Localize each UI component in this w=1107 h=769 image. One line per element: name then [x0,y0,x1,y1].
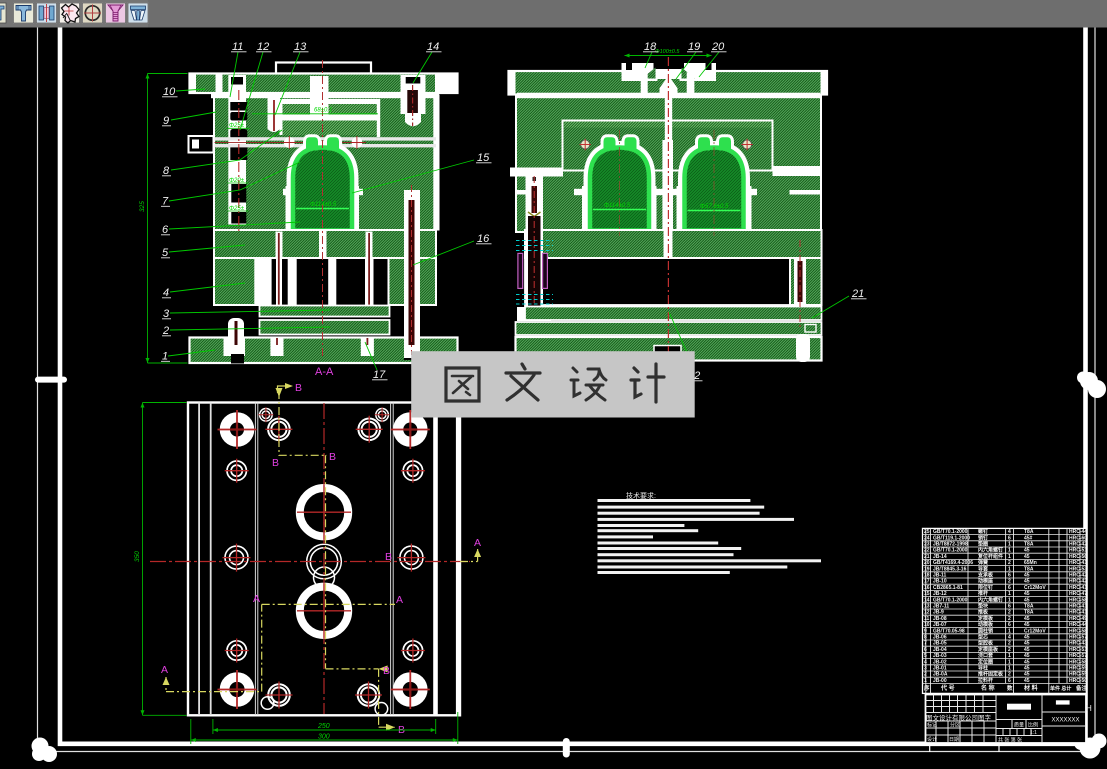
svg-text:19: 19 [924,566,930,572]
svg-text:HRC-58: HRC-58 [1069,659,1087,665]
svg-text:8: 8 [924,635,927,641]
svg-text:6: 6 [1008,535,1011,541]
svg-text:1: 1 [1008,659,1011,665]
svg-text:定模座板: 定模座板 [977,646,999,653]
svg-text:材 料: 材 料 [1023,684,1038,692]
svg-text:支承板: 支承板 [977,572,994,579]
svg-text:GB/T70.1-2000: GB/T70.1-2000 [933,548,968,554]
svg-text:11: 11 [924,616,930,622]
svg-text:21: 21 [924,554,930,560]
svg-text:4: 4 [1008,529,1011,535]
svg-text:HRC-58: HRC-58 [1069,628,1087,634]
svg-text:7: 7 [924,641,927,647]
svg-text:导柱: 导柱 [978,665,988,672]
svg-text:JB7-11: JB7-11 [933,604,949,610]
svg-text:型芯: 型芯 [978,634,988,641]
svg-text:JB-03: JB-03 [933,653,947,659]
svg-text:350: 350 [134,551,141,562]
svg-text:T8A: T8A [1024,542,1034,548]
svg-text:复位杆组件: 复位杆组件 [977,553,1003,560]
svg-text:45: 45 [1024,641,1030,647]
svg-text:销钉: 销钉 [978,534,988,541]
svg-text:A: A [474,537,481,549]
svg-text:45: 45 [1024,635,1030,641]
svg-text:JB-9: JB-9 [933,610,944,616]
svg-text:2: 2 [1008,672,1011,678]
svg-text:HRC-51: HRC-51 [1069,548,1087,554]
svg-text:B: B [329,451,336,463]
svg-text:45: 45 [1024,666,1030,672]
svg-text:325: 325 [139,201,146,212]
svg-text:垫块: 垫块 [978,603,989,610]
svg-text:推板: 推板 [978,609,989,616]
svg-text:A-A: A-A [315,366,334,378]
svg-text:5: 5 [162,247,169,259]
svg-text:质量: 质量 [1014,722,1024,729]
svg-text:标记: 标记 [927,722,937,729]
svg-text:HRC-44: HRC-44 [1069,622,1087,628]
svg-text:12: 12 [924,610,930,616]
svg-text:HRC-53: HRC-53 [1069,566,1087,572]
svg-text:1: 1 [1008,653,1011,659]
svg-text:HRC-50: HRC-50 [1069,678,1087,684]
svg-text:2: 2 [1008,647,1011,653]
svg-text:JB-10: JB-10 [933,579,947,585]
svg-text:Φ57.6±0.5: Φ57.6±0.5 [700,204,729,210]
svg-text:B: B [295,382,302,394]
svg-text:HRC-41: HRC-41 [1069,604,1087,610]
svg-text:20: 20 [711,41,725,53]
svg-text:45: 45 [1024,573,1030,579]
svg-text:250: 250 [317,723,330,730]
svg-text:6: 6 [162,224,169,236]
svg-text:HRC-42: HRC-42 [1069,579,1087,585]
svg-text:20: 20 [924,560,930,566]
svg-text:16: 16 [477,233,490,245]
svg-text:45#: 45# [1024,535,1033,541]
svg-text:JB-00: JB-00 [933,678,947,684]
svg-text:HRC-49: HRC-49 [1069,616,1087,622]
svg-text:18: 18 [924,573,930,579]
svg-text:CB2865.1-81: CB2865.1-81 [933,585,963,591]
svg-text:1:1: 1:1 [1030,730,1037,736]
svg-text:10: 10 [924,622,930,628]
svg-text:21: 21 [851,288,864,300]
svg-text:15: 15 [924,591,930,597]
svg-text:HRC-41: HRC-41 [1069,610,1087,616]
svg-text:内六角螺钉: 内六角螺钉 [978,596,1003,603]
svg-text:拉料杆: 拉料杆 [978,677,993,684]
svg-text:螺钉: 螺钉 [978,528,988,535]
svg-text:序: 序 [923,684,930,692]
svg-text:JB-0A: JB-0A [933,672,948,678]
svg-text:A: A [161,664,168,676]
svg-text:45: 45 [1024,678,1030,684]
svg-text:1: 1 [1008,628,1011,634]
svg-text:13: 13 [294,41,307,53]
svg-text:圆柱销: 圆柱销 [978,627,993,634]
svg-text:2: 2 [1008,616,1011,622]
svg-text:16: 16 [924,585,930,591]
svg-text:6: 6 [924,647,927,653]
svg-text:定位圈: 定位圈 [977,658,993,665]
svg-text:45: 45 [1024,591,1030,597]
svg-text:垫圈: 垫圈 [978,541,988,548]
svg-text:JB-05: JB-05 [933,641,947,647]
svg-text:14: 14 [427,41,439,53]
svg-text:HRC-60: HRC-60 [1069,535,1087,541]
svg-text:17: 17 [924,579,930,585]
svg-text:分区: 分区 [950,722,960,729]
svg-text:GB/T4169.4-2006: GB/T4169.4-2006 [933,560,973,566]
svg-text:设计: 设计 [927,736,937,743]
svg-text:2: 2 [1008,641,1011,647]
svg-text:HRC-56: HRC-56 [1069,554,1087,560]
svg-text:9: 9 [163,115,169,127]
svg-text:数: 数 [1007,684,1013,692]
svg-text:65Mn: 65Mn [1024,560,1037,566]
svg-text:技术要求:: 技术要求: [626,491,656,500]
svg-text:6: 6 [1008,573,1011,579]
svg-text:HRC-51: HRC-51 [1069,647,1087,653]
svg-text:HRC-43: HRC-43 [1069,641,1087,647]
svg-text:代 号: 代 号 [940,684,955,692]
svg-text:11: 11 [232,41,243,53]
svg-text:6: 6 [1008,678,1011,684]
svg-text:12: 12 [257,41,269,53]
svg-text:JB-04: JB-04 [933,647,947,653]
svg-text:Cr12MoV: Cr12MoV [1024,628,1046,634]
svg-text:2: 2 [1008,579,1011,585]
svg-text:17: 17 [373,369,386,381]
svg-text:HRC-42: HRC-42 [1069,573,1087,579]
svg-text:HRC-59: HRC-59 [1069,666,1087,672]
svg-text:浇口套: 浇口套 [978,652,993,659]
svg-text:4: 4 [924,659,927,665]
svg-text:T8A: T8A [1024,566,1034,572]
svg-text:25: 25 [924,529,930,535]
svg-text:15: 15 [477,152,490,164]
svg-text:共 张 第 张: 共 张 第 张 [998,737,1022,744]
svg-text:B: B [272,457,279,469]
svg-text:45: 45 [1024,653,1030,659]
svg-text:4: 4 [1008,635,1011,641]
svg-text:45: 45 [1024,616,1030,622]
svg-text:定模板: 定模板 [977,615,994,622]
svg-text:比例: 比例 [1028,722,1038,729]
svg-text:HRC-44: HRC-44 [1069,529,1087,535]
svg-text:4: 4 [163,287,169,299]
svg-text:XXXXXXX: XXXXXXX [1052,718,1080,724]
svg-text:19: 19 [688,41,700,53]
svg-text:45: 45 [1024,659,1030,665]
svg-text:6: 6 [1008,604,1011,610]
svg-text:1: 1 [924,678,927,684]
svg-text:1: 1 [1008,548,1011,554]
svg-text:名 称: 名 称 [981,684,995,692]
svg-text:Φ100±0.5: Φ100±0.5 [655,49,680,55]
svg-text:45: 45 [1024,672,1030,678]
svg-text:45: 45 [1024,647,1030,653]
svg-text:3: 3 [163,308,170,320]
svg-text:JB-06: JB-06 [933,635,947,641]
svg-text:Φ114±0.5: Φ114±0.5 [604,203,631,209]
svg-text:14: 14 [924,597,930,603]
svg-text:T8A: T8A [1024,610,1034,616]
svg-text:7: 7 [162,196,169,208]
svg-text:HRC-55: HRC-55 [1069,672,1087,678]
svg-text:日期: 日期 [949,737,959,743]
svg-text:1: 1 [1008,666,1011,672]
svg-text:单件 总计: 单件 总计 [1050,685,1071,692]
svg-text:动模座: 动模座 [978,578,993,585]
svg-text:1: 1 [1008,542,1011,548]
svg-text:推杆: 推杆 [978,590,988,597]
svg-text:2: 2 [924,672,927,678]
svg-text:1: 1 [1008,554,1011,560]
svg-text:A: A [253,593,260,605]
svg-text:1: 1 [162,351,168,363]
svg-text:T8A: T8A [1024,529,1034,535]
svg-text:5: 5 [924,653,927,659]
svg-text:1: 1 [1008,566,1011,572]
svg-text:导套: 导套 [978,565,988,572]
svg-text:45: 45 [1024,597,1030,603]
svg-text:45: 45 [1024,548,1030,554]
svg-text:24: 24 [924,535,930,541]
svg-text:1: 1 [1008,597,1011,603]
svg-text:JB-11: JB-11 [933,573,947,579]
svg-text:18: 18 [644,41,657,53]
svg-text:图文设计有限公司图字: 图文设计有限公司图字 [926,713,992,722]
svg-text:T8A: T8A [1024,604,1034,610]
svg-text:6: 6 [1008,585,1011,591]
svg-text:45: 45 [1024,554,1030,560]
svg-text:GB/T119.1-2000: GB/T119.1-2000 [933,535,970,541]
svg-text:45: 45 [1024,579,1030,585]
svg-text:JB-08: JB-08 [933,616,947,622]
svg-text:GB/T70.1-2000: GB/T70.1-2000 [933,597,968,603]
svg-text:推杆固定板: 推杆固定板 [978,671,1004,678]
svg-text:6: 6 [1008,622,1011,628]
svg-text:备注: 备注 [1075,684,1088,692]
svg-text:10: 10 [163,86,176,98]
svg-text:HRC-47: HRC-47 [1069,591,1087,597]
svg-text:JB-07: JB-07 [933,622,947,628]
svg-text:45: 45 [1024,622,1030,628]
svg-text:HRC-41: HRC-41 [1069,560,1087,566]
svg-text:内六角螺钉: 内六角螺钉 [978,547,1003,554]
svg-text:8: 8 [163,165,170,177]
svg-text:弹簧: 弹簧 [978,559,989,566]
svg-text:型腔板: 型腔板 [978,640,994,647]
svg-text:2: 2 [1008,610,1011,616]
svg-text:13: 13 [924,604,930,610]
svg-text:9: 9 [924,628,927,634]
svg-text:JB-01: JB-01 [933,666,947,672]
svg-text:1: 1 [1008,591,1011,597]
svg-text:HRC-57: HRC-57 [1069,635,1087,641]
svg-text:GB/T70.1-2000: GB/T70.1-2000 [933,529,968,535]
svg-text:HRC-57: HRC-57 [1069,653,1087,659]
svg-text:HRC-42: HRC-42 [1069,542,1087,548]
svg-text:22: 22 [924,548,930,554]
svg-text:GB/T70.05-98: GB/T70.05-98 [933,628,965,634]
svg-text:68±0.1: 68±0.1 [314,108,332,114]
svg-text:A: A [396,594,403,606]
svg-text:23: 23 [924,542,930,548]
svg-text:限位钉: 限位钉 [978,584,993,591]
svg-text:JB-02: JB-02 [933,659,947,665]
svg-text:JB/T8872-1998: JB/T8872-1998 [933,542,968,548]
svg-text:HRC-58: HRC-58 [1069,597,1087,603]
svg-text:2: 2 [1008,560,1011,566]
svg-text:Φ114±0.5: Φ114±0.5 [310,202,337,208]
svg-text:B: B [385,551,392,563]
svg-text:Cr12MoV: Cr12MoV [1024,585,1046,591]
svg-text:H: H [1086,704,1092,713]
svg-text:动模板: 动模板 [978,621,994,628]
svg-text:HRC-41: HRC-41 [1069,585,1087,591]
svg-text:2: 2 [162,325,169,337]
svg-text:B: B [383,665,390,677]
svg-text:JB/T8845.3-16: JB/T8845.3-16 [933,566,967,572]
svg-text:300: 300 [318,734,330,741]
svg-text:JB-14: JB-14 [933,554,947,560]
svg-text:3: 3 [924,666,927,672]
svg-text:JB-12: JB-12 [933,591,947,597]
